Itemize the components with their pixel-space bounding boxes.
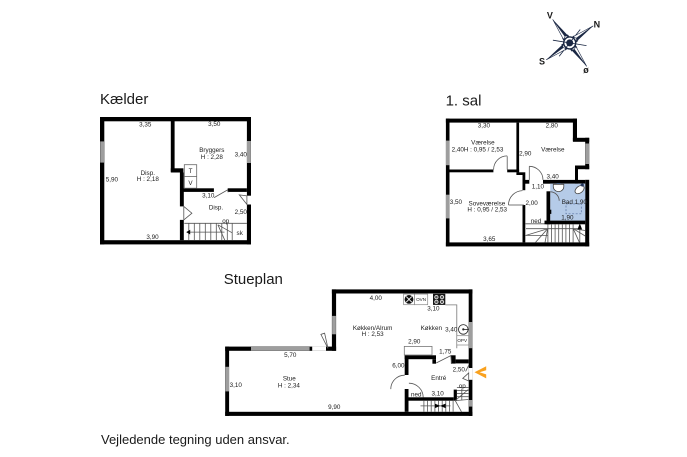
svg-text:ned: ned xyxy=(411,391,422,398)
svg-text:3,50: 3,50 xyxy=(208,121,221,128)
svg-text:6,00: 6,00 xyxy=(392,363,405,370)
svg-text:OPV: OPV xyxy=(457,338,468,343)
svg-text:H : 2,18: H : 2,18 xyxy=(137,176,160,183)
svg-text:Stueplan: Stueplan xyxy=(224,271,283,288)
svg-text:Vejledende tegning uden ansvar: Vejledende tegning uden ansvar. xyxy=(101,432,290,447)
svg-text:9,90: 9,90 xyxy=(328,404,341,411)
svg-text:5,90: 5,90 xyxy=(106,176,119,183)
svg-text:2,90: 2,90 xyxy=(519,151,532,158)
svg-text:Køkken: Køkken xyxy=(421,325,443,332)
svg-text:Disp.: Disp. xyxy=(209,205,224,212)
svg-text:1,75: 1,75 xyxy=(439,349,452,356)
svg-text:sk: sk xyxy=(237,230,244,237)
svg-text:3,10: 3,10 xyxy=(202,192,215,199)
svg-text:H : 0,95 / 2,53: H : 0,95 / 2,53 xyxy=(467,206,507,213)
svg-text:3,90: 3,90 xyxy=(146,234,159,241)
svg-text:ø: ø xyxy=(583,65,589,75)
svg-text:3,35: 3,35 xyxy=(139,122,152,129)
svg-text:op: op xyxy=(222,218,230,225)
svg-text:1,90: 1,90 xyxy=(561,215,574,222)
svg-text:2,50: 2,50 xyxy=(235,209,248,216)
svg-text:S: S xyxy=(539,57,545,67)
svg-text:ned: ned xyxy=(531,218,542,225)
svg-text:1,10: 1,10 xyxy=(532,183,545,190)
svg-text:2,50: 2,50 xyxy=(453,367,466,374)
svg-text:Entré: Entré xyxy=(431,375,447,382)
svg-text:4,00: 4,00 xyxy=(370,295,383,302)
svg-text:Bad 1,90: Bad 1,90 xyxy=(562,199,588,206)
svg-text:OVN: OVN xyxy=(416,297,426,302)
svg-text:op: op xyxy=(459,383,467,390)
svg-text:3,65: 3,65 xyxy=(483,236,496,243)
svg-text:1. sal: 1. sal xyxy=(446,92,482,109)
svg-text:3,40: 3,40 xyxy=(235,152,248,159)
svg-text:Værelse: Værelse xyxy=(541,147,565,154)
svg-text:2,90: 2,90 xyxy=(408,339,421,346)
svg-text:H : 2,34: H : 2,34 xyxy=(278,382,301,389)
svg-text:N: N xyxy=(594,19,601,29)
svg-text:3,40: 3,40 xyxy=(445,327,458,334)
svg-text:5,70: 5,70 xyxy=(284,352,297,359)
svg-text:3,10: 3,10 xyxy=(230,382,243,389)
svg-text:2,00: 2,00 xyxy=(525,200,538,207)
svg-text:3,30: 3,30 xyxy=(478,123,491,130)
svg-text:Kælder: Kælder xyxy=(100,91,148,108)
svg-text:T: T xyxy=(189,168,193,175)
svg-text:2,40H : 0,95 / 2,53: 2,40H : 0,95 / 2,53 xyxy=(452,146,504,153)
svg-text:2,80: 2,80 xyxy=(546,123,559,130)
svg-text:3,50: 3,50 xyxy=(450,199,463,206)
svg-text:H : 2,53: H : 2,53 xyxy=(362,331,385,338)
svg-text:V: V xyxy=(547,11,553,21)
svg-text:3,10: 3,10 xyxy=(431,390,444,397)
svg-text:3,10: 3,10 xyxy=(427,306,440,313)
svg-text:3,40: 3,40 xyxy=(546,173,559,180)
svg-text:H : 2,28: H : 2,28 xyxy=(201,154,224,161)
